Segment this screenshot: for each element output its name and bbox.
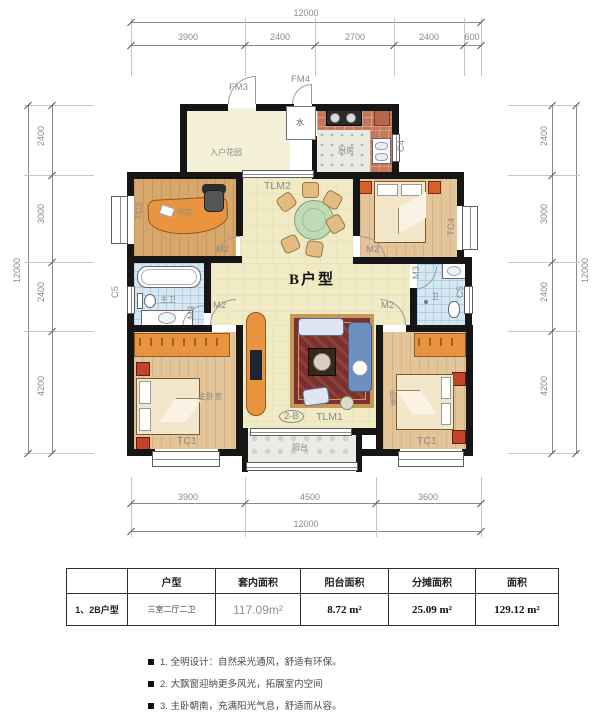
dim-left-seg-2: 3000 — [36, 204, 46, 224]
wall — [127, 314, 134, 456]
dimension-line — [28, 105, 29, 453]
extension-line — [315, 18, 316, 76]
dim-left-total: 12000 — [12, 258, 22, 283]
code-unit-tag: 2-B — [279, 410, 304, 423]
dim-left-seg-3: 2400 — [36, 282, 46, 302]
code-tlm1: TLM1 — [316, 411, 343, 423]
vanity-sink — [158, 312, 176, 324]
room-label-bath: 卫 — [431, 291, 439, 302]
bullet-square-icon — [148, 703, 154, 709]
dining-chair — [302, 182, 319, 198]
sofa-long — [348, 322, 372, 392]
office-chair — [204, 190, 224, 212]
dimension-line — [52, 105, 53, 453]
window — [127, 286, 135, 314]
window-pane-line — [243, 174, 313, 175]
window-pane-line — [120, 197, 121, 243]
wall — [127, 172, 242, 179]
extension-line — [245, 18, 246, 76]
bath-sink — [447, 266, 461, 276]
dim-top-total: 12000 — [293, 8, 318, 18]
floor-drain — [424, 300, 428, 304]
sink-basin — [375, 142, 388, 150]
code-tlm2: TLM2 — [264, 180, 291, 192]
extension-line — [24, 105, 94, 106]
extension-line — [24, 262, 94, 263]
window-pane-line — [469, 287, 470, 313]
dim-left-seg-4: 4200 — [36, 376, 46, 396]
extension-line — [508, 331, 580, 332]
extension-line — [508, 453, 580, 454]
room-label-study: 书房 — [176, 207, 192, 218]
window — [152, 451, 220, 467]
dim-left-seg-1: 2400 — [36, 126, 46, 146]
cell-balcony-area: 8.72 m² — [301, 594, 389, 626]
cell-unit-name: 1、2B户型 — [67, 594, 128, 626]
window — [111, 196, 128, 244]
wall — [406, 325, 472, 332]
window-pane-line — [131, 287, 132, 313]
toilet — [144, 294, 156, 308]
cell-total-area: 129.12 m² — [476, 594, 559, 626]
wall — [127, 449, 155, 456]
room-label-kitchen: 厨房 — [338, 145, 354, 156]
code-fm4: FM4 — [291, 74, 310, 85]
window — [242, 170, 314, 178]
extension-line — [464, 18, 465, 76]
dim-top-seg-2: 2400 — [270, 32, 290, 42]
dim-bottom-total: 12000 — [293, 519, 318, 529]
code-m3-bath: M3 — [411, 266, 422, 279]
code-c5-right: C5 — [455, 286, 466, 298]
wardrobe-hangers — [418, 338, 462, 346]
dim-right-seg-2: 3000 — [539, 204, 549, 224]
dining-table-top — [302, 208, 326, 232]
dim-right-seg-3: 2400 — [539, 282, 549, 302]
coffee-table-top — [313, 353, 331, 371]
window-pane-line — [247, 467, 357, 468]
dimension-line — [576, 105, 577, 453]
wall — [127, 244, 134, 286]
dim-bottom-seg-1: 3900 — [178, 492, 198, 502]
wall — [353, 257, 472, 264]
floor-plan-page: 12000 3900 2400 2700 2400 600 3900 4500 … — [0, 0, 600, 723]
code-m2-study: M2 — [216, 244, 229, 255]
window — [246, 462, 358, 471]
wall — [236, 428, 244, 435]
code-tc1-right: TC1 — [417, 435, 437, 447]
wall — [236, 172, 243, 236]
pillow — [401, 184, 422, 196]
wall — [127, 256, 242, 263]
wall — [376, 325, 383, 456]
code-m2-master: M2 — [213, 300, 226, 311]
window — [250, 428, 352, 436]
nightstand — [428, 181, 441, 194]
selling-points: 1. 全明设计：自然采光通风，舒适有环保。 2. 大飘窗迎纳更多风光，拓展室内空… — [148, 655, 342, 721]
dim-bottom-seg-2: 4500 — [300, 492, 320, 502]
code-tc1-left: TC1 — [177, 435, 197, 447]
window-pane-line — [399, 459, 463, 460]
sink-basin — [375, 153, 388, 161]
dim-top-seg-3: 2700 — [345, 32, 365, 42]
note-text-1: 1. 全明设计：自然采光通风，舒适有环保。 — [160, 657, 342, 668]
bullet-square-icon — [148, 681, 154, 687]
dimension-line — [131, 503, 481, 504]
wardrobe-hangers — [139, 338, 225, 346]
extension-line — [131, 18, 132, 76]
wall — [180, 104, 228, 111]
code-c4: C4 — [396, 140, 407, 152]
pillow — [441, 403, 451, 425]
toilet — [448, 301, 460, 318]
window — [462, 206, 478, 250]
extension-line — [481, 18, 482, 76]
header-blank — [67, 569, 128, 594]
dimension-line — [552, 105, 553, 453]
wall — [392, 104, 399, 134]
cell-layout: 三室二厅二卫 — [128, 594, 216, 626]
bullet-square-icon — [148, 659, 154, 665]
unit-type-label: B户型 — [289, 268, 335, 289]
dim-right-seg-1: 2400 — [539, 126, 549, 146]
dim-bottom-seg-3: 3600 — [418, 492, 438, 502]
room-label-master-bedroom: 主卧室 — [198, 391, 222, 402]
dim-right-seg-4: 4200 — [539, 376, 549, 396]
code-c5-left: C5 — [110, 286, 121, 298]
code-m3-masterbath: M3 — [186, 306, 197, 319]
extension-line — [508, 262, 580, 263]
wall — [465, 257, 472, 286]
nightstand — [136, 362, 150, 376]
header-total-area: 面积 — [476, 569, 559, 594]
room-label-balcony: 阳台 — [292, 442, 308, 453]
door-leaf — [255, 76, 256, 104]
room-label-master-bath: 主卫 — [160, 294, 176, 305]
area-table: 户型 套内面积 阳台面积 分摊面积 面积 1、2B户型 三室二厅二卫 117.0… — [66, 568, 559, 626]
dim-top-seg-1: 3900 — [178, 32, 198, 42]
window-pane-line — [251, 432, 351, 433]
wall — [312, 136, 317, 172]
dimension-line — [131, 22, 481, 23]
entry-garden-floor — [184, 108, 290, 172]
extension-line — [508, 105, 580, 106]
code-fm3: FM3 — [229, 82, 248, 93]
note-text-3: 3. 主卧朝南，充满阳光气息，舒适而从容。 — [160, 701, 342, 712]
pillow — [377, 184, 398, 196]
pillow — [139, 408, 151, 431]
toilet-tank — [137, 293, 143, 309]
wall — [127, 172, 134, 196]
note-line: 1. 全明设计：自然采光通风，舒适有环保。 — [148, 655, 342, 677]
pillow — [139, 381, 151, 404]
code-m2-bedroom2: M2 — [366, 244, 379, 255]
dimension-line — [131, 531, 481, 532]
extension-line — [24, 453, 94, 454]
dim-right-total: 12000 — [580, 258, 590, 283]
header-layout: 户型 — [128, 569, 216, 594]
label-water: 水 — [296, 117, 304, 128]
wall — [180, 104, 187, 178]
wall — [312, 172, 463, 179]
sofa-loveseat — [298, 318, 344, 336]
code-tc2: TC2 — [134, 202, 145, 220]
wall — [352, 428, 380, 435]
nightstand — [359, 181, 372, 194]
bathtub-inner — [141, 269, 197, 285]
cell-shared-area: 25.09 m² — [389, 594, 476, 626]
window-pane-line — [470, 207, 471, 249]
wall — [466, 325, 473, 456]
note-text-2: 2. 大飘窗迎纳更多风光，拓展室内空间 — [160, 679, 323, 690]
wall — [457, 172, 464, 206]
dim-top-seg-4: 2400 — [419, 32, 439, 42]
door-arc — [292, 84, 312, 104]
stove-burner — [330, 113, 340, 123]
extension-line — [508, 175, 580, 176]
header-balcony-area: 阳台面积 — [301, 569, 389, 594]
pillow — [441, 377, 451, 399]
nightstand — [452, 430, 466, 444]
extension-line — [24, 175, 94, 176]
header-interior-area: 套内面积 — [216, 569, 301, 594]
table-header-row: 户型 套内面积 阳台面积 分摊面积 面积 — [67, 569, 559, 594]
code-tc4: TC4 — [446, 218, 457, 236]
stove-burner — [346, 113, 356, 123]
wall — [127, 325, 212, 332]
tv — [250, 350, 262, 380]
wall — [204, 256, 211, 313]
extension-line — [394, 18, 395, 76]
side-table — [340, 396, 354, 410]
extension-line — [245, 477, 246, 537]
kitchen-cabinet — [374, 109, 390, 126]
door-leaf — [311, 84, 312, 104]
extension-line — [376, 477, 377, 537]
cell-interior-area: 117.09m² — [216, 594, 301, 626]
room-label-bedroom: 卧室 — [388, 390, 399, 406]
header-shared-area: 分摊面积 — [389, 569, 476, 594]
window — [398, 451, 464, 467]
note-line: 2. 大飘窗迎纳更多风光，拓展室内空间 — [148, 677, 342, 699]
sofa-cushion — [352, 360, 368, 376]
note-line: 3. 主卧朝南，充满阳光气息，舒适而从容。 — [148, 699, 342, 721]
room-label-entry-garden: 入户花园 — [210, 147, 242, 158]
extension-line — [24, 331, 94, 332]
table-data-row: 1、2B户型 三室二厅二卫 117.09m² 8.72 m² 25.09 m² … — [67, 594, 559, 626]
window-pane-line — [153, 459, 219, 460]
nightstand — [452, 372, 466, 386]
code-m2-bedroom3: M2 — [381, 300, 394, 311]
wall — [312, 104, 398, 111]
armchair — [302, 386, 330, 406]
dimension-line — [131, 45, 481, 46]
dining-chair — [305, 240, 325, 259]
wall — [353, 172, 360, 236]
